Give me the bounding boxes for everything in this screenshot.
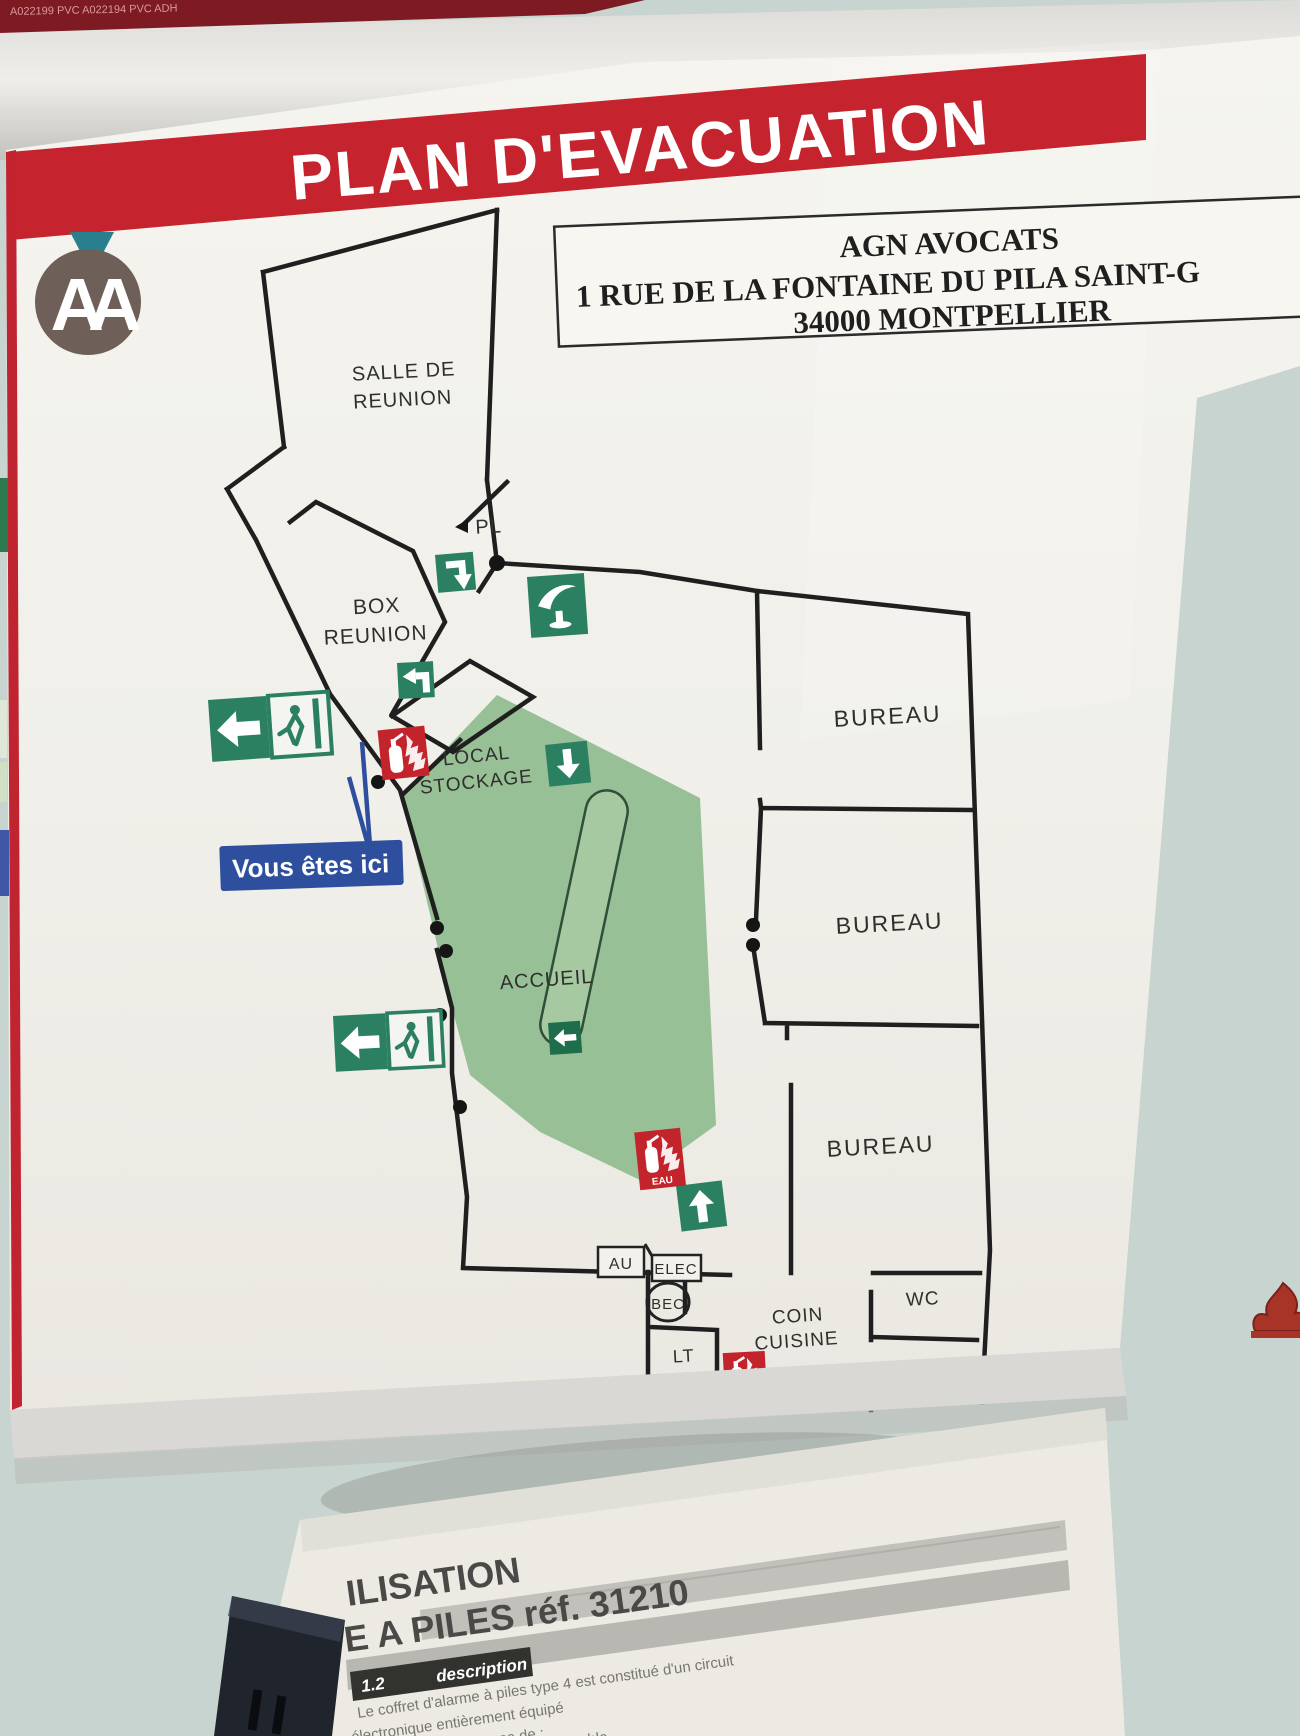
label-bec: BEC: [651, 1296, 685, 1313]
emergency-exit-sign-lower: [333, 1010, 444, 1071]
fire-extinguisher-sign-1: [378, 726, 430, 781]
scene: A022199 PVC A022194 PVC ADH PLAN D'EVACU…: [0, 0, 1300, 1736]
arrow-down-icon: [545, 741, 591, 787]
alarm-device-corner: [214, 1596, 345, 1736]
room-label-box-1: BOX: [352, 594, 400, 619]
room-label-pl: PL: [475, 515, 503, 538]
arrow-up-icon: [676, 1180, 727, 1231]
room-label-lt: LT: [672, 1345, 695, 1366]
legend-fragment-blue: [0, 830, 9, 896]
paper-section-number: 1.2: [360, 1674, 387, 1696]
room-label-wc-top: WC: [905, 1288, 940, 1311]
photo-evacuation-plan: A022199 PVC A022194 PVC ADH PLAN D'EVACU…: [0, 0, 1300, 1736]
arrow-left-icon: [548, 1021, 582, 1055]
you-are-here-label: Vous êtes ici: [232, 848, 390, 883]
extinguisher-agent-label: EAU: [651, 1175, 673, 1188]
arrow-bend-left-icon: [397, 661, 435, 699]
safety-equipment-icon: [527, 573, 588, 638]
legend-fragment-palegreen: [0, 762, 7, 802]
emergency-exit-sign-upper: [208, 692, 332, 762]
fire-extinguisher-sign-eau: EAU: [634, 1128, 686, 1190]
legend-fragment-pale: [0, 700, 7, 758]
room-label-coin-1: COIN: [771, 1304, 824, 1329]
label-elec: ELEC: [654, 1261, 697, 1278]
arrow-down-left-icon: [435, 552, 476, 593]
label-au: AU: [609, 1256, 633, 1273]
legend-fragment-green: [0, 478, 8, 552]
